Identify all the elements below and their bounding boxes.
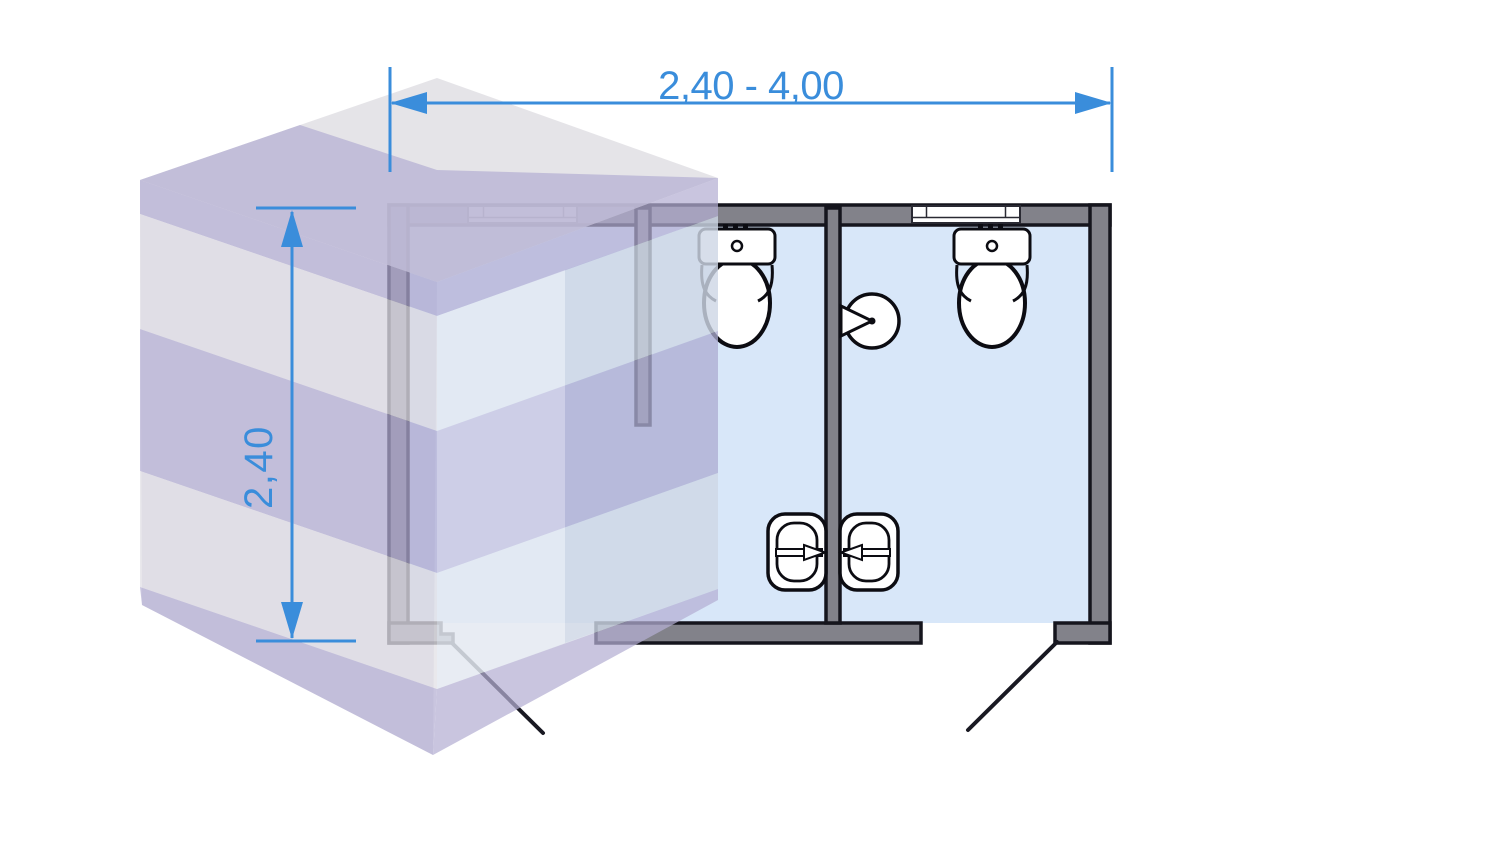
dimension-height-label: 2,40	[237, 425, 281, 509]
toilet-2	[954, 224, 1030, 347]
toilet-bowl	[959, 259, 1025, 347]
arrow-right-icon	[1075, 92, 1112, 114]
dimension-width-label: 2,40 - 4,00	[658, 64, 844, 108]
flush-button	[732, 241, 742, 251]
cube-inner-panel-light	[437, 270, 565, 689]
door-swing-right	[968, 642, 1057, 730]
cube-inner-panel-blue	[565, 216, 718, 643]
floorplan-drawing: 2,40 - 4,00 2,40	[0, 0, 1500, 844]
wash-basin-left	[768, 514, 826, 590]
isometric-container-volume	[140, 78, 718, 755]
wall-right	[1090, 205, 1110, 643]
wash-basin-right	[840, 514, 898, 590]
canvas: 2,40 - 4,00 2,40	[0, 0, 1500, 844]
window-right	[912, 206, 1020, 223]
wall-bottom-right-stub	[1055, 623, 1110, 643]
flush-button	[987, 241, 997, 251]
partition-wall-middle	[826, 208, 840, 623]
